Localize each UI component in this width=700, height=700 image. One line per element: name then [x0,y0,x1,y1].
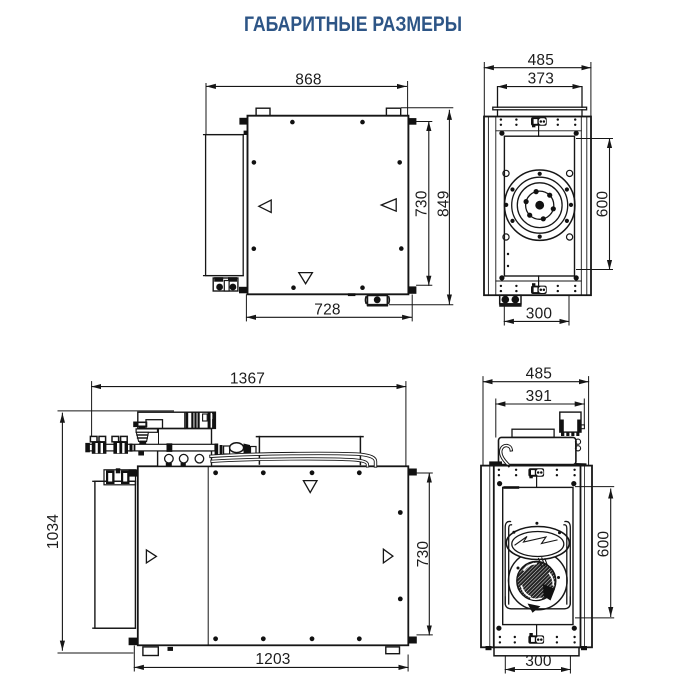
svg-text:1367: 1367 [230,370,265,387]
svg-text:ГАБАРИТНЫЕ РАЗМЕРЫ: ГАБАРИТНЫЕ РАЗМЕРЫ [244,12,462,36]
svg-text:849: 849 [435,190,452,216]
svg-text:391: 391 [526,388,552,405]
svg-text:600: 600 [595,191,612,218]
svg-text:300: 300 [525,653,552,670]
svg-text:485: 485 [528,52,554,69]
svg-text:1203: 1203 [255,651,290,668]
svg-text:730: 730 [415,541,432,568]
svg-text:1034: 1034 [45,514,62,549]
svg-text:600: 600 [596,531,613,558]
svg-text:373: 373 [528,71,554,88]
svg-text:868: 868 [295,71,321,88]
svg-text:730: 730 [414,190,431,217]
svg-text:485: 485 [526,366,552,383]
svg-text:300: 300 [526,305,553,322]
svg-text:728: 728 [314,302,340,319]
